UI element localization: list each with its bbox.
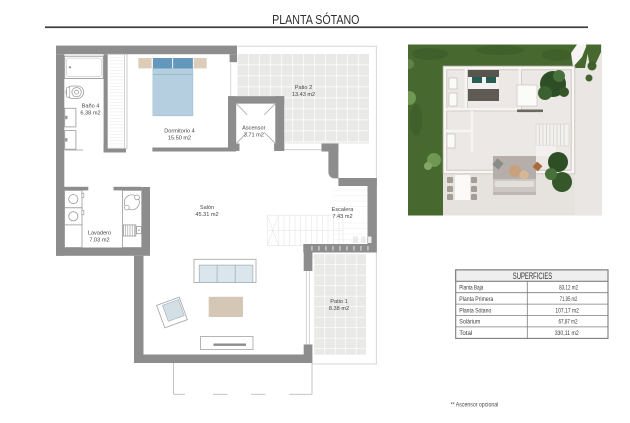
svg-text:3.71 m2: 3.71 m2 — [244, 133, 264, 139]
svg-text:Baño 4: Baño 4 — [82, 104, 100, 110]
svg-text:Planta Sótano: Planta Sótano — [459, 307, 491, 314]
svg-text:Salón: Salón — [200, 205, 214, 211]
svg-text:Planta Primera: Planta Primera — [459, 296, 493, 303]
svg-text:83,12 m2: 83,12 m2 — [559, 285, 578, 292]
svg-text:Escalera: Escalera — [332, 207, 355, 213]
svg-text:Patio 1: Patio 1 — [330, 299, 347, 305]
svg-text:Lavadero: Lavadero — [88, 231, 111, 237]
svg-text:45.31 m2: 45.31 m2 — [195, 212, 218, 218]
svg-text:67,87 m2: 67,87 m2 — [559, 319, 578, 326]
svg-text:71,95 m2: 71,95 m2 — [560, 296, 578, 303]
svg-text:** Ascensor opcional: ** Ascensor opcional — [451, 403, 499, 409]
svg-text:Planta Baja: Planta Baja — [459, 285, 483, 292]
svg-text:Dormitorio 4: Dormitorio 4 — [164, 129, 194, 135]
svg-text:8.38 m2: 8.38 m2 — [329, 306, 349, 312]
svg-text:7.03 m2: 7.03 m2 — [89, 238, 109, 244]
svg-text:Total: Total — [459, 330, 472, 337]
svg-text:7.43 m2: 7.43 m2 — [332, 214, 352, 220]
svg-text:PLANTA SÓTANO: PLANTA SÓTANO — [272, 12, 359, 27]
svg-text:Solárium: Solárium — [459, 319, 480, 326]
svg-text:330,11 m2: 330,11 m2 — [555, 330, 579, 337]
svg-text:SUPERFICIES: SUPERFICIES — [513, 271, 553, 282]
svg-text:13.43 m2: 13.43 m2 — [292, 92, 315, 98]
svg-text:15.50 m2: 15.50 m2 — [168, 136, 191, 142]
svg-text:Ascensor: Ascensor — [242, 126, 265, 132]
svg-text:Patio 2: Patio 2 — [295, 85, 312, 91]
svg-text:6.38 m2: 6.38 m2 — [80, 111, 100, 117]
svg-text:107,17 m2: 107,17 m2 — [555, 307, 579, 314]
